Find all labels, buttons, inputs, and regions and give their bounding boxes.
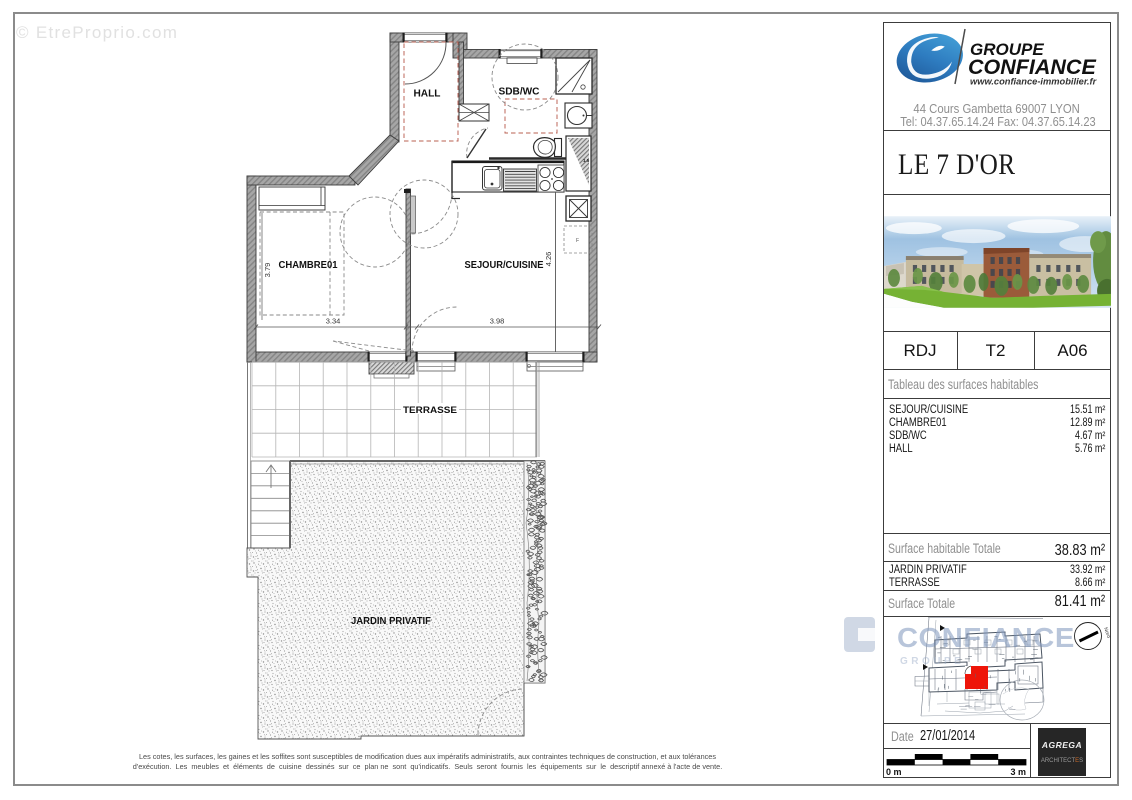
svg-text:1.5: 1.5 xyxy=(583,158,590,163)
svg-text:CHAMBRE01: CHAMBRE01 xyxy=(279,259,338,271)
svg-text:SDB/WC: SDB/WC xyxy=(499,86,540,98)
svg-text:0 m: 0 m xyxy=(886,767,902,777)
svg-text:3 m: 3 m xyxy=(1010,767,1026,777)
svg-text:HALL: HALL xyxy=(414,88,442,100)
svg-text:CONFIANCE: CONFIANCE xyxy=(968,55,1096,79)
svg-text:3.34: 3.34 xyxy=(326,317,341,326)
svg-text:3.98: 3.98 xyxy=(490,317,505,326)
svg-text:3.79: 3.79 xyxy=(263,263,272,278)
svg-text:JARDIN PRIVATIF: JARDIN PRIVATIF xyxy=(351,616,431,627)
svg-text:F: F xyxy=(576,238,579,244)
svg-text:www.confiance-immobilier.fr: www.confiance-immobilier.fr xyxy=(970,77,1098,87)
svg-text:TERRASSE: TERRASSE xyxy=(403,405,457,416)
svg-text:SEJOUR/CUISINE: SEJOUR/CUISINE xyxy=(465,259,544,271)
svg-text:Nord: Nord xyxy=(1102,627,1111,639)
